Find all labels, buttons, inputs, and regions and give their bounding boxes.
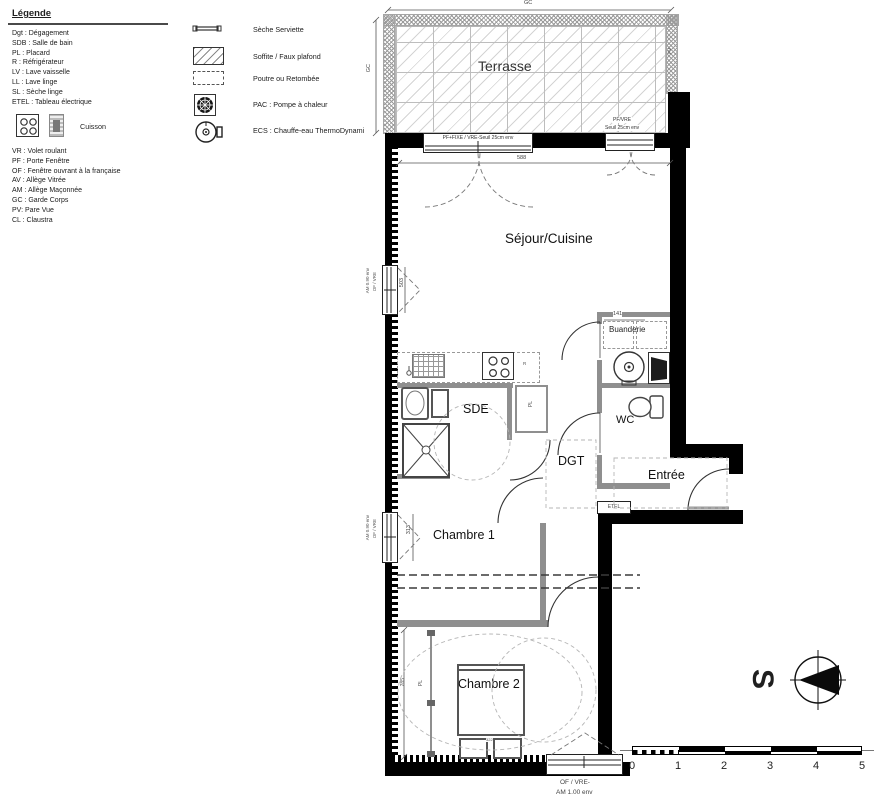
legend-divider <box>8 23 168 25</box>
scale-seg-3-4-top <box>771 747 817 752</box>
bathroom-cabinet <box>431 389 449 418</box>
legend-abbr-of: OF : Fenêtre ouvrant à la française <box>12 167 202 177</box>
window-top-right-label2: Seuil 25cm env <box>604 125 640 131</box>
pac-unit <box>648 352 670 384</box>
partition-sde-right <box>507 383 512 440</box>
window-chambre1-left-sill-label: AM 0.90 env <box>365 515 370 540</box>
towel-dryer-label: Sèche Serviette <box>253 25 304 34</box>
pac-label: PAC : Pompe à chaleur <box>253 100 328 109</box>
legend-abbreviations-2: VR : Volet roulant PF : Porte Fenêtre OF… <box>12 147 202 225</box>
oven-icon <box>49 114 64 137</box>
washbasin <box>401 387 429 420</box>
window-top-right-label1: PF/VRE <box>612 117 632 123</box>
partition-wc-bottom <box>597 483 670 489</box>
terrasse-wall-band-top <box>383 14 679 26</box>
wall-entree-bottom <box>612 510 743 524</box>
dgt-label: DGT <box>558 454 584 468</box>
dim-chambre1-window: 313 <box>406 525 412 534</box>
legend-abbr-r: R : Réfrigérateur <box>12 58 182 68</box>
partition-buanderie-top <box>597 312 670 317</box>
scale-seg-4-5-bottom <box>817 751 862 756</box>
legend-abbr-vr: VR : Volet roulant <box>12 147 202 157</box>
window-bottom-label2: AM 1.00 env <box>556 789 593 796</box>
pac-icon <box>194 94 216 116</box>
terrasse-label: Terrasse <box>478 58 532 74</box>
entree-label: Entrée <box>648 468 685 482</box>
shower <box>402 423 450 478</box>
legend-abbr-am: AM : Allège Maçonnée <box>12 186 202 196</box>
window-top-main: PF+FIXE / VRE-Seuil 25cm env <box>423 133 533 153</box>
legend-abbr-ll: LL : Lave linge <box>12 78 182 88</box>
scale-seg-0-1 <box>633 750 679 754</box>
beam-icon <box>193 71 224 85</box>
legend-abbr-pl: PL : Placard <box>12 49 182 59</box>
wardrobe-pl-label: PL <box>418 680 424 686</box>
oven-door <box>53 120 60 132</box>
cooktop-icon <box>16 114 39 137</box>
legend-abbr-gc: GC : Garde Corps <box>12 196 202 206</box>
partition-chambre2-top <box>397 620 548 627</box>
window-sejour-left-sill-label: AM 0.90 env <box>365 268 370 293</box>
window-bottom-label1: OF / VRE- <box>560 779 590 786</box>
nightstand-right <box>493 738 522 759</box>
scale-seg-1-2-top <box>679 747 725 752</box>
bed-headboard-line <box>459 669 523 671</box>
closet-pl-label: PL <box>528 401 534 407</box>
legend-abbr-dgt: Dgt : Dégagement <box>12 29 182 39</box>
legend-abbreviations: Dgt : Dégagement SDB : Salle de bain PL … <box>12 29 182 107</box>
cuisson-label: Cuisson <box>80 122 106 131</box>
terrasse-gc-left-label: GC <box>366 64 372 72</box>
wc-label: WC <box>616 414 634 426</box>
window-top-main-label: PF+FIXE / VRE-Seuil 25cm env <box>426 135 530 141</box>
beam-label: Poutre ou Retombée <box>253 74 319 83</box>
bed <box>457 664 525 736</box>
buanderie-label: Buanderie <box>609 325 645 334</box>
floorplan-page: Légende Dgt : Dégagement SDB : Salle de … <box>0 0 879 800</box>
sde-label: SDE <box>463 402 489 416</box>
closet-pl: PL <box>515 385 548 433</box>
legend-abbr-cl: CL : Claustra <box>12 216 202 226</box>
etel-box: ETEL <box>597 501 631 514</box>
soffit-icon <box>193 47 224 65</box>
cooktop-burners-icon <box>17 115 40 138</box>
legend-abbr-etel: ETEL : Tableau électrique <box>12 98 182 108</box>
terrasse-wall-band-left <box>383 14 395 134</box>
scale-tick-4: 4 <box>806 760 826 772</box>
wall-entree-right <box>729 458 743 474</box>
wall-right-sejour <box>670 133 686 458</box>
ecs-label: ECS : Chauffe-eau ThermoDynami <box>253 126 364 135</box>
partition-buanderie-left-a <box>597 312 602 324</box>
fridge-label: R <box>523 361 526 366</box>
soffit-label: Soffite / Faux plafond <box>253 52 321 61</box>
sejour-label: Séjour/Cuisine <box>505 231 593 246</box>
legend-title: Légende <box>12 8 51 19</box>
nightstand-left <box>459 738 488 759</box>
window-top-right <box>605 133 655 151</box>
chambre2-label: Chambre 2 <box>458 677 520 691</box>
window-chambre1-left <box>382 512 398 563</box>
window-chambre2-bottom <box>546 754 623 775</box>
etel-label: ETEL <box>598 504 630 510</box>
compass-south-label: S <box>745 669 779 689</box>
dim-sejour-window: 503 <box>399 278 405 287</box>
scale-tick-1: 1 <box>668 760 688 772</box>
legend-abbr-av: AV : Allège Vitrée <box>12 176 202 186</box>
terrasse-gc-top-label: GC <box>524 0 532 6</box>
window-sejour-left-label: OF / VRE <box>372 272 377 291</box>
kitchen-sink <box>412 354 445 378</box>
scale-bar <box>632 746 862 755</box>
wall-right-lower <box>598 510 612 776</box>
legend-abbr-sdb: SDB : Salle de bain <box>12 39 182 49</box>
scale-tick-0: 0 <box>622 760 642 772</box>
partition-chambre1-right <box>540 523 546 623</box>
cooktop <box>482 352 514 380</box>
scale-tick-5: 5 <box>852 760 872 772</box>
window-sejour-left <box>382 265 398 315</box>
dim-buanderie-width: 141 <box>613 311 622 317</box>
building-wall-upper-right <box>668 92 690 136</box>
terrasse-pv-label: PV <box>667 48 672 54</box>
scale-tick-3: 3 <box>760 760 780 772</box>
window-chambre1-left-label: OF / VRE <box>372 519 377 538</box>
scale-seg-2-3-bottom <box>725 751 771 756</box>
legend-abbr-pf: PF : Porte Fenêtre <box>12 157 202 167</box>
chambre2-dim-label: 285 <box>400 678 406 686</box>
wall-entree-top <box>670 444 743 458</box>
legend-abbr-lv: LV : Lave vaisselle <box>12 68 182 78</box>
legend-abbr-sl: SL : Sèche linge <box>12 88 182 98</box>
dim-sejour-width: 588 <box>517 155 526 161</box>
bed-dim-label: 322 <box>486 737 493 742</box>
wall-left-insulation <box>392 148 398 755</box>
legend-abbr-pv: PV: Pare Vue <box>12 206 202 216</box>
scale-tick-2: 2 <box>714 760 734 772</box>
chambre1-label: Chambre 1 <box>433 528 495 542</box>
ecs-icon <box>192 118 232 146</box>
wall-left <box>385 133 392 776</box>
